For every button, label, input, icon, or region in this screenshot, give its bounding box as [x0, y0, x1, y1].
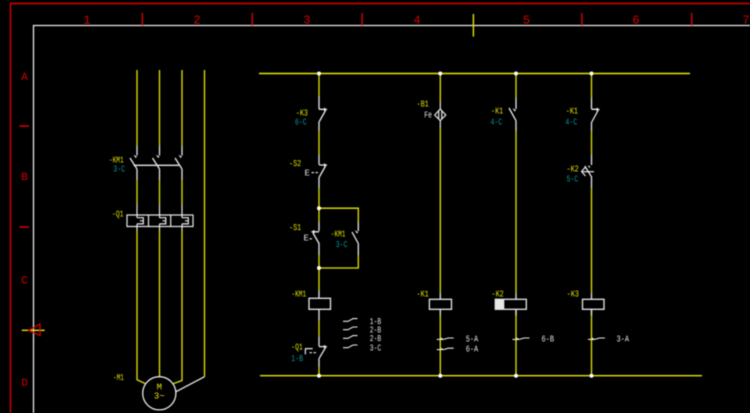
svg-text:D: D [21, 378, 28, 390]
svg-text:3-C: 3-C [370, 343, 382, 353]
svg-text:E: E [305, 168, 310, 178]
svg-text:7: 7 [742, 14, 749, 28]
svg-text:-K2: -K2 [567, 165, 579, 175]
svg-text:6-B: 6-B [542, 334, 555, 344]
svg-text:C: C [21, 276, 28, 288]
svg-text:6-A: 6-A [466, 344, 479, 354]
svg-text:3~: 3~ [154, 392, 165, 402]
svg-text:-M1: -M1 [113, 373, 124, 383]
svg-text:-KM1: -KM1 [292, 290, 307, 300]
svg-text:-Q1: -Q1 [291, 342, 303, 352]
svg-text:3-C: 3-C [113, 165, 125, 175]
svg-text:2: 2 [193, 14, 200, 28]
svg-text:-B1: -B1 [417, 100, 429, 110]
svg-text:-S2: -S2 [289, 159, 301, 169]
svg-text:3-C: 3-C [336, 240, 348, 250]
svg-text:-S1: -S1 [289, 223, 301, 233]
svg-text:A: A [21, 72, 28, 84]
svg-text:-K1: -K1 [566, 107, 578, 117]
svg-text:-K3: -K3 [567, 290, 579, 300]
svg-text:6: 6 [632, 14, 639, 28]
svg-text:1-B: 1-B [291, 354, 303, 364]
svg-text:B: B [21, 172, 28, 184]
svg-text:-K1: -K1 [417, 290, 429, 300]
svg-text:-K2: -K2 [492, 290, 504, 300]
svg-text:E: E [304, 234, 309, 244]
svg-text:-K1: -K1 [491, 107, 503, 117]
svg-text:6-C: 6-C [295, 117, 307, 127]
svg-text:4-C: 4-C [565, 117, 577, 127]
svg-text:Fe: Fe [424, 111, 432, 121]
svg-text:3-A: 3-A [617, 334, 630, 344]
svg-text:5-A: 5-A [466, 334, 479, 344]
svg-text:1: 1 [83, 14, 90, 28]
svg-text:4: 4 [413, 14, 420, 28]
svg-text:5: 5 [523, 14, 530, 28]
svg-text:-KM1: -KM1 [331, 230, 346, 240]
svg-text:4-C: 4-C [491, 117, 503, 127]
svg-text:5-C: 5-C [567, 175, 579, 185]
svg-text:-Q1: -Q1 [112, 210, 124, 220]
svg-text:3: 3 [303, 14, 310, 28]
